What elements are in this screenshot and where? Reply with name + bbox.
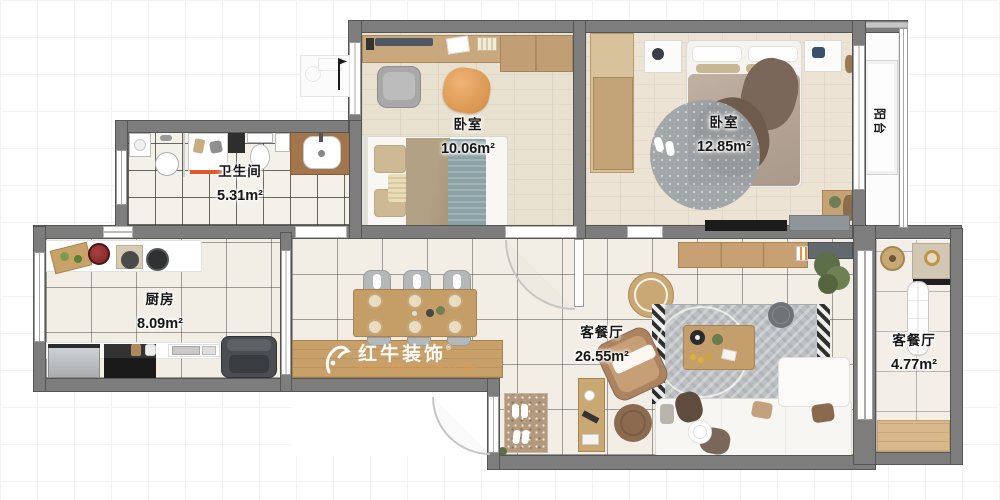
table-candle (412, 311, 417, 316)
fruit (706, 354, 712, 360)
room-area: 10.06m² (441, 142, 495, 157)
window-kitchen (34, 252, 45, 342)
shower-head-icon (160, 135, 172, 141)
desk-plant (829, 196, 841, 208)
plate (407, 319, 423, 335)
room-name: 卧室 (441, 118, 495, 132)
wok (146, 248, 169, 271)
nightstand-decor (652, 48, 664, 60)
room-name: 卧室 (697, 116, 751, 130)
wall-top (348, 20, 908, 33)
sliding-door-balcony (853, 45, 865, 190)
desk-tray (582, 434, 599, 445)
knit-pillow (388, 174, 408, 202)
entry-door-leaf (488, 396, 499, 453)
fruit (698, 357, 704, 363)
toilet-tank (247, 133, 273, 143)
vegetables (74, 255, 82, 263)
fridge (48, 344, 100, 378)
room-area: 4.77m² (891, 358, 937, 373)
room-area: 12.85m² (697, 140, 751, 155)
wardrobe-lower-shelf (593, 77, 633, 170)
sink-drain (318, 150, 325, 157)
shower-stool (155, 152, 179, 176)
door-opening-bathroom (295, 226, 347, 238)
slipper (512, 404, 519, 418)
sofa-pillow-round-ring (693, 425, 707, 439)
watermark-brand-text: 红牛装饰® (358, 345, 477, 364)
gold-mirror (924, 250, 940, 266)
wall-bath-bedroom1 (349, 120, 362, 239)
wall-sideroom-right (950, 228, 963, 465)
tv-cabinet-bedroom2 (789, 215, 850, 231)
pouf-ring (772, 306, 790, 324)
fridge-top-line (48, 344, 100, 348)
pillow (692, 46, 742, 62)
small-pillow (696, 64, 740, 73)
wall-sideroom-south (862, 452, 962, 465)
door-opening-bedroom1 (505, 226, 577, 238)
mop-sink-drain (134, 139, 146, 151)
plate (447, 319, 463, 335)
window-bedroom1 (349, 42, 361, 115)
fruit (690, 354, 696, 360)
shower-divider (183, 133, 185, 177)
room-area: 26.55m² (575, 350, 629, 365)
office-chair-cushion (383, 72, 415, 100)
door-leaf-bedroom1 (574, 239, 584, 307)
room-name: 客餐厅 (891, 334, 937, 348)
wall-living-south (487, 455, 876, 470)
sofa-pillow-gray (660, 404, 674, 424)
tv-console (678, 242, 808, 268)
wall-bedroom-divider (573, 20, 586, 239)
chaise-cushion (778, 357, 850, 407)
plate (367, 293, 383, 309)
bull-logo-icon (322, 343, 352, 375)
kitchen-sink2 (202, 346, 216, 355)
room-label-bedroom2: 卧室 12.85m² (697, 116, 751, 154)
slipper (521, 404, 528, 418)
plant-large (818, 274, 838, 294)
room-label-side-room: 客餐厅 4.77m² (891, 334, 937, 372)
monitor (375, 38, 433, 46)
wall-bathroom-top (115, 120, 360, 133)
table-plant (712, 334, 723, 345)
room-name: 客餐厅 (575, 326, 629, 340)
napkin (413, 274, 421, 289)
plate (407, 293, 423, 309)
napkin (453, 274, 461, 289)
nightstand-decor (812, 47, 825, 58)
window-balcony-outer (899, 28, 908, 228)
watermark-subtitle: HONG NIU DECORATION (358, 366, 477, 373)
vegetables (60, 252, 69, 261)
tray-dot (695, 335, 700, 340)
pillow (374, 145, 406, 173)
jar (145, 344, 156, 356)
table-plant (436, 306, 445, 315)
side-room-wood-strip (877, 420, 950, 452)
red-pot (88, 243, 110, 265)
console-books (796, 246, 808, 261)
dark-appliance-seat (229, 355, 269, 373)
room-label-balcony: 阳台 (872, 108, 889, 136)
shelf-item (209, 140, 223, 154)
wardrobe-bedroom1 (500, 35, 573, 72)
napkin (373, 274, 381, 289)
sliding-door-sideroom (857, 250, 873, 420)
plate (447, 293, 463, 309)
desk-speaker (366, 38, 374, 50)
sliding-door-kitchen (281, 250, 291, 375)
desk-bowl (584, 390, 595, 401)
desk-books (477, 37, 497, 51)
sofa-pillow-tan (751, 400, 773, 419)
faucet (319, 133, 323, 142)
table-centerpiece (426, 309, 434, 317)
plate (367, 319, 383, 335)
room-area: 5.31m² (217, 189, 263, 204)
wall-kitchen-south (33, 378, 500, 392)
door-opening-kitchen-north (103, 226, 133, 238)
room-name: 厨房 (137, 293, 183, 307)
dark-appliance-top (227, 339, 271, 351)
desk-papers (446, 36, 470, 55)
door-opening-bedroom2 (627, 226, 663, 238)
room-label-bathroom: 卫生间 5.31m² (217, 165, 263, 203)
floor-plan-canvas: 卧室 10.06m² 卧室 12.85m² 卫生间 5.31m² 厨房 8.09… (0, 0, 1000, 500)
registered-mark: ® (446, 345, 454, 352)
outside-mask (292, 391, 487, 456)
bath-cabinet (275, 133, 290, 152)
brand-watermark: 红牛装饰® HONG NIU DECORATION (322, 341, 497, 377)
room-label-kitchen: 厨房 8.09m² (137, 293, 183, 331)
room-name: 卫生间 (217, 165, 263, 179)
kitchen-sink (172, 346, 200, 355)
sofa-pillow-brown (811, 403, 835, 424)
room-area: 8.09m² (137, 317, 183, 332)
window-bathroom (116, 150, 127, 205)
room-label-living: 客餐厅 26.55m² (575, 326, 629, 364)
room-label-bedroom1: 卧室 10.06m² (441, 118, 495, 156)
ottoman-ring (620, 410, 646, 436)
coffee-machine-top (121, 251, 139, 269)
washing-machine (228, 133, 245, 153)
stove-oven-lower (104, 358, 156, 380)
rattan-basket-center (889, 255, 896, 262)
tv-bedroom2 (705, 220, 787, 231)
grinder (131, 344, 141, 356)
